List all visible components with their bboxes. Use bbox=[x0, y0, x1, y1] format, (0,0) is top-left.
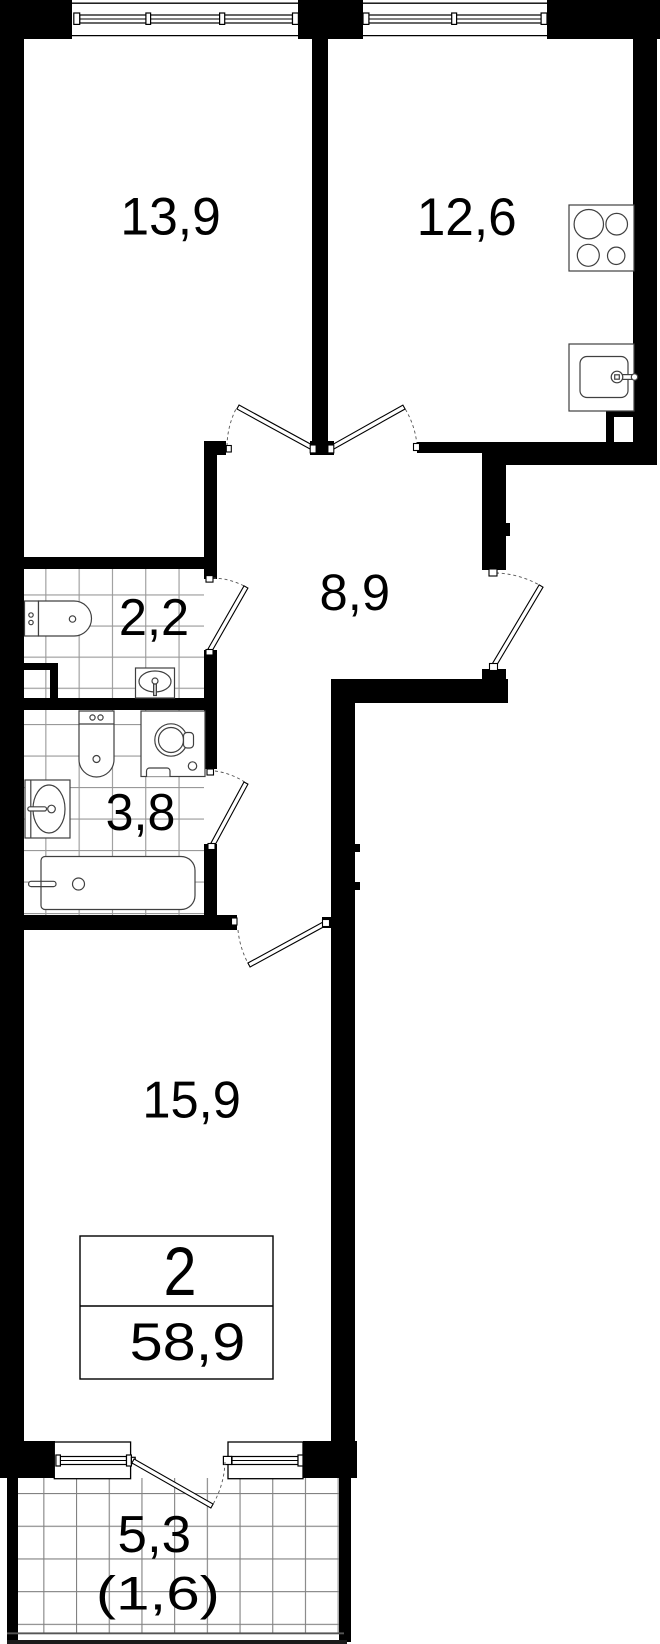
svg-text:(1,6): (1,6) bbox=[96, 1566, 220, 1619]
svg-text:58,9: 58,9 bbox=[130, 1313, 246, 1372]
svg-text:2,2: 2,2 bbox=[119, 589, 189, 647]
svg-text:2: 2 bbox=[164, 1233, 197, 1310]
svg-text:5,3: 5,3 bbox=[118, 1506, 192, 1564]
svg-text:8,9: 8,9 bbox=[320, 564, 391, 621]
svg-text:15,9: 15,9 bbox=[142, 1071, 241, 1129]
svg-text:3,8: 3,8 bbox=[106, 784, 176, 842]
svg-text:13,9: 13,9 bbox=[120, 188, 220, 247]
svg-text:12,6: 12,6 bbox=[417, 188, 517, 247]
